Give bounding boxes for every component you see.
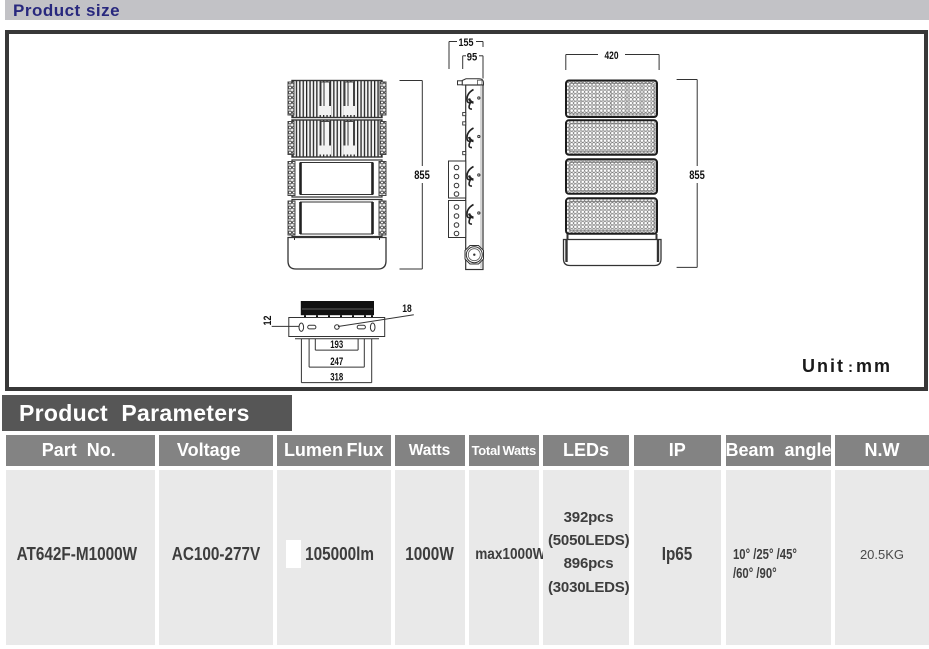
- svg-text:155: 155: [459, 37, 474, 49]
- svg-text:95: 95: [467, 52, 478, 64]
- svg-text:855: 855: [689, 168, 705, 182]
- svg-text:18: 18: [402, 303, 412, 315]
- svg-text:12: 12: [262, 316, 274, 326]
- svg-text:318: 318: [330, 372, 343, 384]
- svg-text:247: 247: [330, 356, 343, 368]
- svg-text:193: 193: [330, 339, 343, 351]
- svg-text:420: 420: [605, 50, 619, 62]
- svg-text:855: 855: [414, 168, 430, 182]
